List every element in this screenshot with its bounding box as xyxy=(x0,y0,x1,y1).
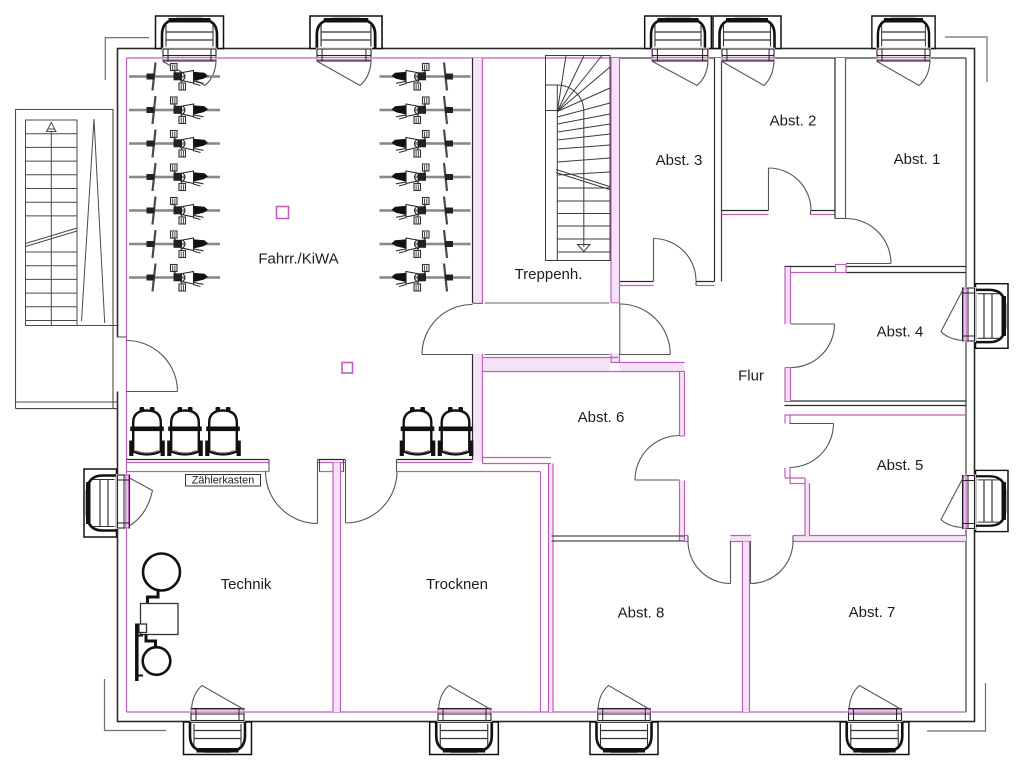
svg-text:Treppenh.: Treppenh. xyxy=(515,266,583,283)
svg-text:Abst. 5: Abst. 5 xyxy=(877,457,924,474)
svg-text:Abst. 3: Abst. 3 xyxy=(656,152,703,169)
svg-text:Flur: Flur xyxy=(738,368,764,385)
svg-text:Zählerkasten: Zählerkasten xyxy=(192,475,254,487)
svg-text:Abst. 4: Abst. 4 xyxy=(877,324,924,341)
svg-text:Fahrr./KiWA: Fahrr./KiWA xyxy=(258,251,338,268)
svg-text:Abst. 1: Abst. 1 xyxy=(894,151,941,168)
svg-text:Abst. 8: Abst. 8 xyxy=(618,605,665,622)
svg-text:Abst. 6: Abst. 6 xyxy=(578,409,625,426)
svg-text:Abst. 7: Abst. 7 xyxy=(849,604,896,621)
svg-text:Abst. 2: Abst. 2 xyxy=(770,113,817,130)
svg-text:Technik: Technik xyxy=(221,576,272,593)
svg-text:Trocknen: Trocknen xyxy=(426,576,488,593)
